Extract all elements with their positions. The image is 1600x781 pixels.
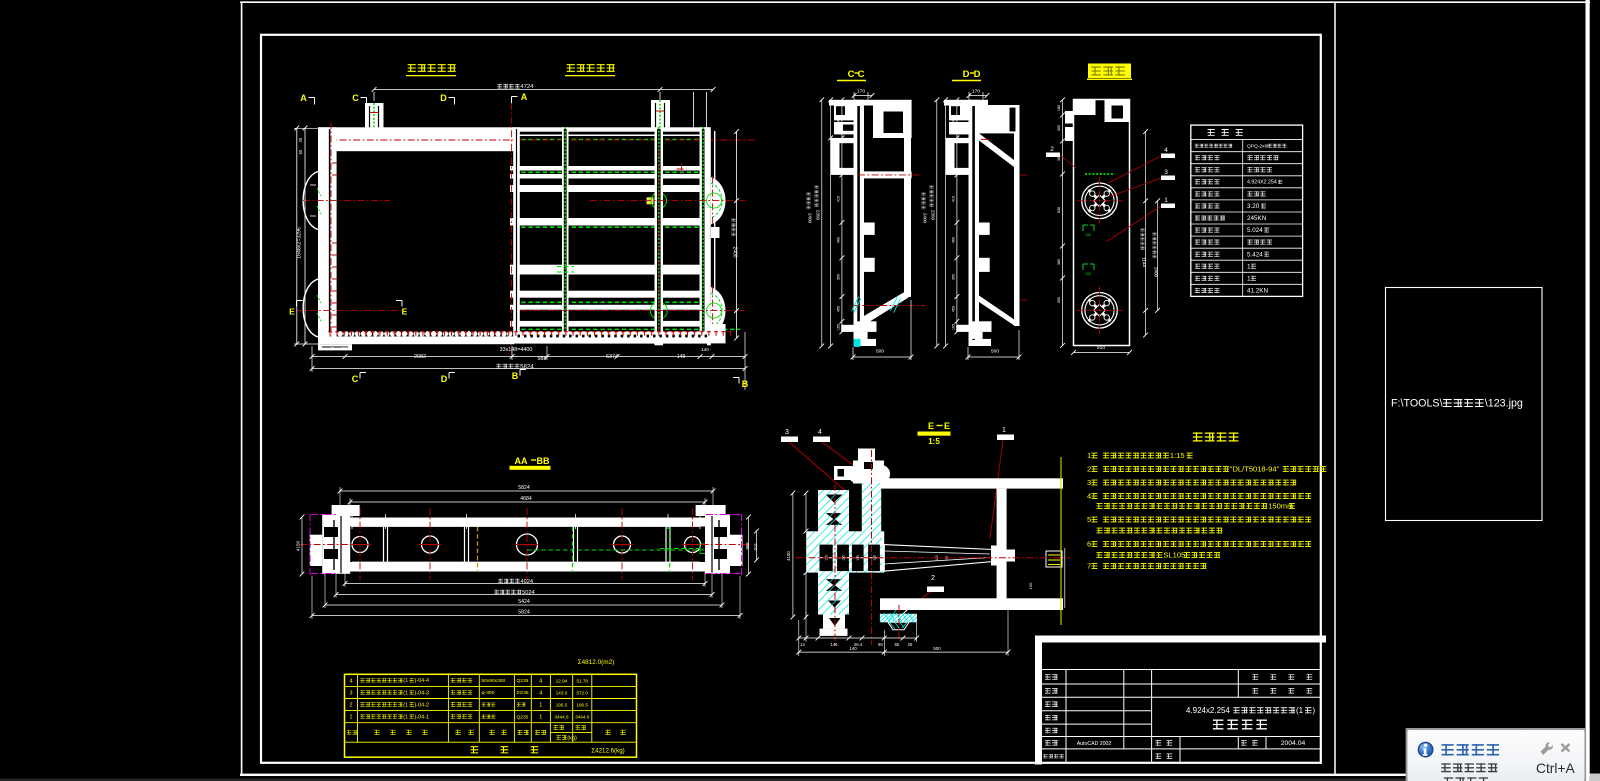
- svg-text:1: 1: [350, 715, 353, 721]
- svg-text:3.20: 3.20: [1247, 203, 1260, 210]
- svg-text:60: 60: [878, 642, 883, 647]
- svg-text:2350: 2350: [931, 210, 936, 221]
- svg-text:6374: 6374: [606, 354, 618, 360]
- svg-text:810: 810: [1097, 345, 1105, 351]
- svg-text:C: C: [858, 69, 865, 80]
- svg-text:4: 4: [818, 429, 822, 436]
- svg-text:4: 4: [1164, 147, 1168, 154]
- svg-text:4150: 4150: [296, 540, 301, 551]
- svg-text:D: D: [441, 374, 448, 384]
- svg-text:QPQ-2x6t: QPQ-2x6t: [1247, 143, 1269, 149]
- svg-text:2400: 2400: [732, 246, 738, 257]
- svg-text:2082: 2082: [414, 354, 426, 360]
- svg-text:196.5: 196.5: [556, 703, 568, 708]
- svg-text:1: 1: [539, 703, 542, 709]
- svg-text:4150: 4150: [786, 551, 791, 561]
- svg-text:E: E: [944, 421, 950, 431]
- svg-text:65: 65: [894, 642, 899, 647]
- svg-text:(kg): (kg): [567, 735, 577, 741]
- svg-text:410: 410: [951, 196, 955, 202]
- svg-text:830: 830: [1057, 207, 1061, 213]
- svg-text:5424: 5424: [518, 599, 530, 605]
- svg-text:1: 1: [1247, 276, 1251, 283]
- svg-text:5.024: 5.024: [1247, 227, 1263, 234]
- svg-text:2: 2: [931, 575, 935, 582]
- svg-text:2400: 2400: [923, 213, 928, 224]
- svg-text:C: C: [848, 69, 855, 80]
- svg-text:140: 140: [836, 153, 840, 159]
- svg-text:Ctrl+A: Ctrl+A: [1536, 761, 1576, 776]
- svg-text:1648x2=3296: 1648x2=3296: [297, 227, 303, 259]
- svg-text:1: 1: [1087, 451, 1091, 460]
- svg-text:2: 2: [350, 703, 353, 709]
- svg-text:196.5: 196.5: [576, 703, 588, 708]
- svg-text:1144: 1144: [1142, 257, 1147, 267]
- svg-text:4.924x2.254: 4.924x2.254: [1186, 706, 1230, 715]
- svg-text:1:15: 1:15: [1170, 451, 1185, 460]
- svg-text:AutoCAD 2002: AutoCAD 2002: [1077, 741, 1112, 747]
- svg-text:165: 165: [836, 324, 840, 330]
- svg-text:1: 1: [539, 715, 542, 721]
- svg-text:): ): [1313, 706, 1316, 715]
- svg-text:25: 25: [908, 642, 913, 647]
- svg-text:572.0: 572.0: [576, 690, 588, 695]
- svg-text:2400: 2400: [1154, 267, 1159, 278]
- svg-text:(1: (1: [403, 690, 408, 696]
- svg-text:170: 170: [857, 89, 865, 95]
- svg-text:500: 500: [933, 646, 941, 651]
- svg-text:SL105: SL105: [1163, 551, 1185, 560]
- svg-text:A: A: [300, 93, 307, 103]
- svg-text:3: 3: [1087, 478, 1091, 487]
- svg-text:450: 450: [836, 306, 840, 312]
- svg-text:410: 410: [836, 196, 840, 202]
- svg-text:50x90x300: 50x90x300: [482, 678, 506, 684]
- svg-text:(1: (1: [403, 702, 408, 708]
- svg-text:400: 400: [836, 117, 840, 123]
- svg-text:143.0: 143.0: [556, 690, 568, 695]
- svg-text:300: 300: [1057, 125, 1061, 131]
- svg-text:245KN: 245KN: [1247, 215, 1267, 222]
- svg-text:(1: (1: [403, 715, 408, 721]
- svg-text:51.78: 51.78: [576, 678, 588, 683]
- svg-text:φ-300: φ-300: [482, 690, 495, 696]
- svg-text:2400: 2400: [808, 213, 813, 224]
- svg-text:150: 150: [1028, 582, 1033, 589]
- svg-text:1:5: 1:5: [928, 437, 940, 446]
- svg-text:170: 170: [972, 89, 980, 95]
- svg-text:3: 3: [785, 429, 789, 436]
- svg-text:E: E: [289, 307, 295, 317]
- svg-text:Σ4812.0(m2): Σ4812.0(m2): [578, 659, 615, 666]
- svg-text:460: 460: [951, 237, 955, 243]
- svg-text:1: 1: [1002, 427, 1006, 434]
- svg-text:)-04-1: )-04-1: [415, 715, 430, 721]
- svg-text:350: 350: [951, 274, 955, 280]
- svg-text:570: 570: [753, 544, 758, 552]
- svg-text:5824: 5824: [518, 610, 530, 616]
- svg-text:40: 40: [330, 347, 334, 351]
- svg-text:4724: 4724: [520, 84, 534, 90]
- svg-text:ZG35: ZG35: [517, 690, 529, 696]
- svg-text:5: 5: [1087, 515, 1091, 524]
- svg-text:450: 450: [951, 306, 955, 312]
- svg-text:2004.04: 2004.04: [1281, 740, 1306, 747]
- svg-text:350: 350: [836, 274, 840, 280]
- svg-text:6: 6: [1087, 540, 1091, 549]
- svg-text:)-04-4: )-04-4: [415, 678, 430, 684]
- svg-text:148: 148: [677, 354, 686, 360]
- svg-text:180: 180: [1057, 105, 1061, 111]
- svg-text:E: E: [928, 421, 934, 431]
- svg-text:E: E: [402, 307, 408, 317]
- svg-text:(1: (1: [403, 678, 408, 684]
- svg-text:150: 150: [1085, 233, 1091, 237]
- svg-text:2350: 2350: [816, 210, 821, 221]
- svg-text:)-04-3: )-04-3: [415, 690, 430, 696]
- svg-text:41.2KN: 41.2KN: [1247, 288, 1268, 295]
- svg-text:D: D: [963, 69, 970, 80]
- svg-text:B: B: [742, 379, 749, 389]
- svg-text:65: 65: [298, 149, 303, 154]
- svg-text:500: 500: [876, 349, 884, 355]
- svg-text:C: C: [352, 374, 359, 384]
- svg-text:2: 2: [1087, 465, 1091, 474]
- svg-text:150: 150: [341, 347, 347, 351]
- svg-text:146: 146: [831, 642, 839, 647]
- svg-text:25: 25: [298, 137, 303, 142]
- svg-text:C: C: [352, 93, 359, 103]
- svg-text:A: A: [521, 92, 528, 102]
- svg-text:1: 1: [1164, 197, 1168, 204]
- svg-text:"DL/T5018-94": "DL/T5018-94": [1230, 465, 1280, 474]
- svg-text:140: 140: [701, 347, 709, 352]
- svg-text:400: 400: [951, 117, 955, 123]
- svg-text:3444.6: 3444.6: [554, 715, 568, 720]
- svg-text:350: 350: [1057, 297, 1061, 303]
- svg-text:Q235: Q235: [517, 678, 529, 684]
- svg-text:)-04-2: )-04-2: [415, 702, 430, 708]
- svg-text:140: 140: [951, 153, 955, 159]
- svg-text:165: 165: [951, 324, 955, 330]
- svg-text:14: 14: [800, 642, 805, 647]
- svg-text:B: B: [512, 371, 519, 381]
- svg-text:F:\TOOLS\: F:\TOOLS\: [1391, 398, 1443, 410]
- svg-text:\123.jpg: \123.jpg: [1485, 398, 1523, 410]
- svg-text:(1: (1: [1296, 706, 1304, 715]
- svg-text:4: 4: [539, 678, 542, 684]
- svg-text:988: 988: [538, 356, 547, 362]
- svg-text:D: D: [440, 93, 447, 103]
- svg-text:Σ4212.6(kg): Σ4212.6(kg): [591, 748, 624, 755]
- svg-text:5.424: 5.424: [1247, 251, 1263, 258]
- svg-text:4: 4: [1087, 492, 1091, 501]
- svg-text:4.924X2.254: 4.924X2.254: [1247, 180, 1277, 186]
- svg-text:140: 140: [849, 646, 857, 651]
- svg-text:33x148=4400: 33x148=4400: [500, 347, 533, 353]
- svg-text:12.94: 12.94: [556, 678, 568, 683]
- svg-text:3444.6: 3444.6: [575, 715, 589, 720]
- svg-text:BB: BB: [537, 456, 550, 466]
- svg-text:1: 1: [1247, 264, 1251, 271]
- svg-text:4924: 4924: [521, 579, 534, 585]
- svg-text:4: 4: [539, 690, 542, 696]
- svg-text:500: 500: [991, 349, 999, 355]
- svg-text:Q235: Q235: [517, 714, 529, 720]
- svg-text:D: D: [974, 69, 981, 80]
- svg-text:2: 2: [1050, 146, 1054, 153]
- svg-text:460: 460: [836, 237, 840, 243]
- svg-text:7: 7: [1087, 562, 1091, 571]
- svg-text:4: 4: [350, 678, 353, 684]
- svg-text:AA: AA: [515, 456, 528, 466]
- svg-text:150: 150: [1085, 272, 1091, 276]
- svg-text:5024: 5024: [522, 590, 535, 596]
- svg-text:3: 3: [350, 690, 353, 696]
- svg-text:898: 898: [745, 543, 750, 551]
- svg-text:4684: 4684: [520, 496, 532, 502]
- svg-text:5824: 5824: [518, 485, 530, 491]
- svg-text:380: 380: [1057, 259, 1061, 265]
- svg-text:3: 3: [1164, 169, 1168, 176]
